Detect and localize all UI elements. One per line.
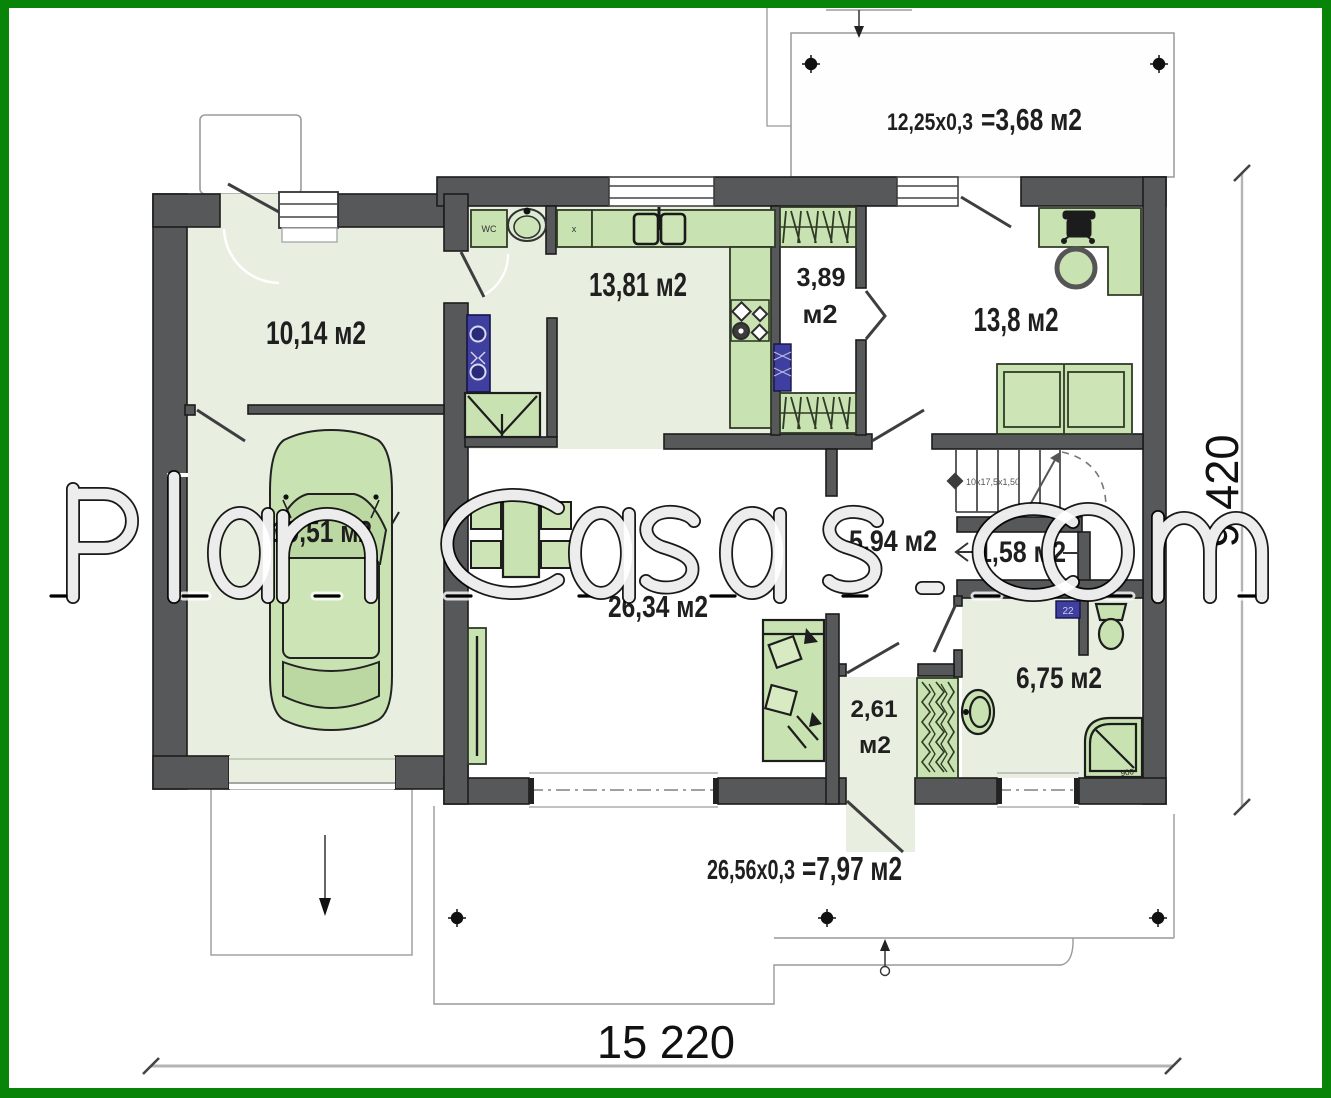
svg-text:3,89: 3,89 [797, 262, 846, 292]
svg-text:м2: м2 [803, 299, 838, 329]
svg-text:26,56x0,3: 26,56x0,3 [707, 854, 795, 885]
svg-text:12,25x0,3: 12,25x0,3 [887, 109, 973, 136]
svg-text:10,14 м2: 10,14 м2 [266, 315, 366, 351]
svg-text:x: x [572, 224, 577, 234]
svg-text:13,81 м2: 13,81 м2 [589, 266, 687, 303]
svg-text:10x17,5x1,50: 10x17,5x1,50 [966, 477, 1020, 487]
svg-text:=3,68 м2: =3,68 м2 [981, 102, 1082, 137]
svg-text:6,75 м2: 6,75 м2 [1016, 662, 1102, 695]
svg-text:15 220: 15 220 [597, 1016, 735, 1068]
svg-text:900: 900 [1120, 767, 1135, 778]
svg-text:2,61: 2,61 [851, 696, 898, 723]
svg-text:22: 22 [1062, 606, 1074, 617]
svg-text:м2: м2 [859, 732, 891, 759]
svg-text:WC: WC [482, 224, 497, 234]
svg-text:13,8 м2: 13,8 м2 [974, 301, 1059, 338]
svg-text:=7,97 м2: =7,97 м2 [802, 850, 902, 887]
